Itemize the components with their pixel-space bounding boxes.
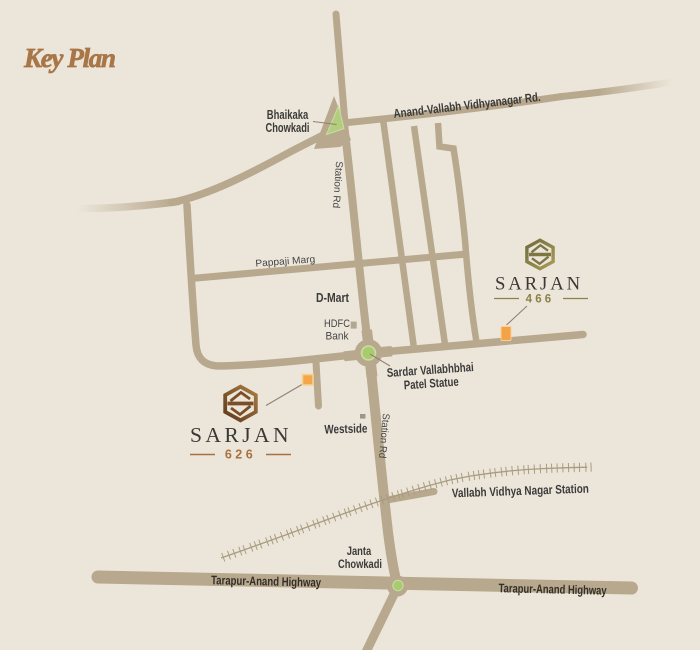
svg-text:Westside: Westside	[324, 421, 367, 436]
svg-text:Bhaikaka: Bhaikaka	[267, 108, 309, 122]
svg-text:Janta: Janta	[347, 546, 372, 558]
svg-text:Chowkadi: Chowkadi	[266, 121, 310, 135]
svg-text:466: 466	[526, 294, 555, 306]
svg-text:HDFC: HDFC	[324, 318, 350, 330]
svg-text:Tarapur-Anand Highway: Tarapur-Anand Highway	[498, 581, 606, 597]
svg-text:626: 626	[225, 448, 256, 462]
svg-text:D-Mart: D-Mart	[316, 290, 350, 305]
svg-text:Chowkadi: Chowkadi	[338, 559, 382, 571]
svg-text:Key Plan: Key Plan	[23, 43, 116, 73]
svg-text:SARJAN: SARJAN	[495, 274, 583, 295]
svg-text:Tarapur-Anand Highway: Tarapur-Anand Highway	[211, 573, 321, 589]
svg-text:Bank: Bank	[326, 331, 349, 343]
svg-text:SARJAN: SARJAN	[190, 423, 292, 447]
